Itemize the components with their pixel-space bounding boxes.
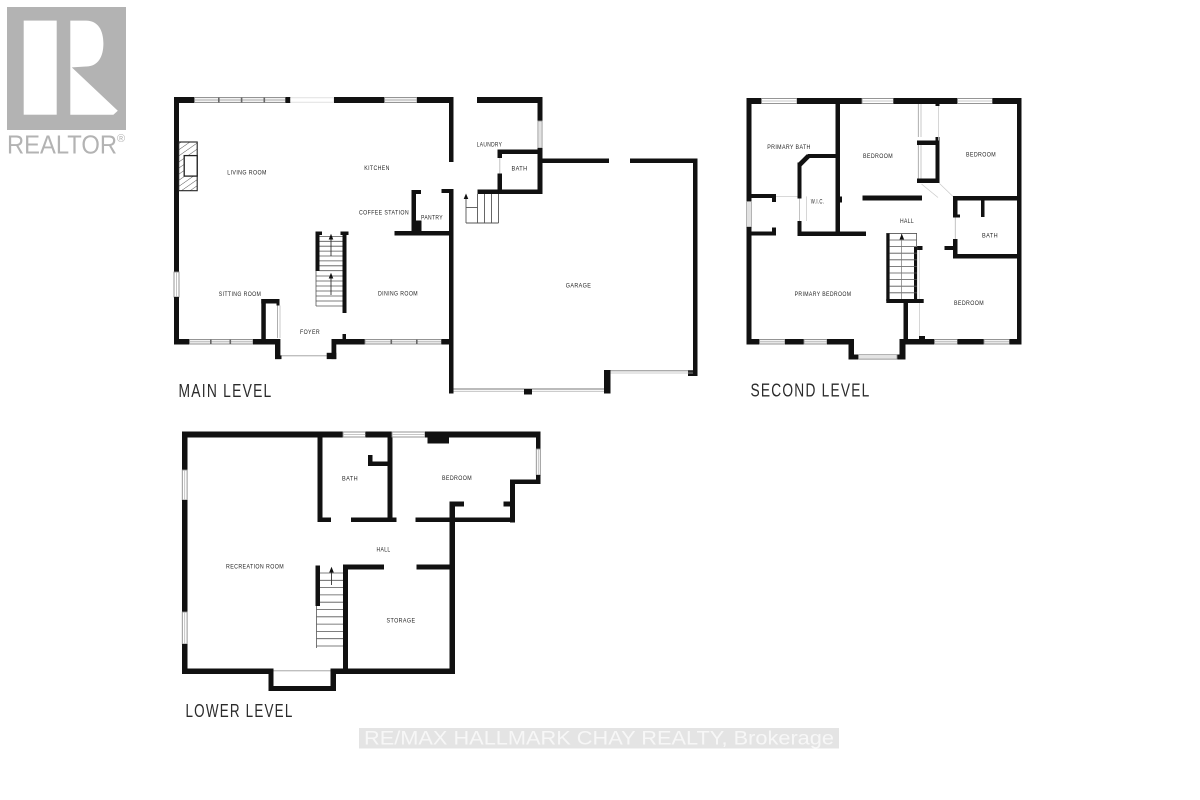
svg-text:LAUNDRY: LAUNDRY <box>477 142 503 149</box>
svg-text:PRIMARY BEDROOM: PRIMARY BEDROOM <box>795 291 852 298</box>
svg-text:BEDROOM: BEDROOM <box>966 152 996 159</box>
svg-text:W.I.C.: W.I.C. <box>811 198 825 205</box>
svg-text:FOYER: FOYER <box>300 329 320 336</box>
svg-text:HALL: HALL <box>377 547 391 554</box>
svg-text:RECREATION ROOM: RECREATION ROOM <box>226 563 284 570</box>
svg-text:BEDROOM: BEDROOM <box>954 300 984 307</box>
svg-text:BATH: BATH <box>342 476 358 483</box>
svg-text:BEDROOM: BEDROOM <box>442 475 472 482</box>
svg-text:MAIN LEVEL: MAIN LEVEL <box>179 381 273 401</box>
svg-text:REALTOR: REALTOR <box>7 132 117 160</box>
svg-text:BATH: BATH <box>982 232 998 239</box>
svg-text:STORAGE: STORAGE <box>387 617 416 624</box>
svg-text:PRIMARY BATH: PRIMARY BATH <box>767 144 811 151</box>
svg-text:COFFEE STATION: COFFEE STATION <box>359 210 409 217</box>
svg-text:LOWER LEVEL: LOWER LEVEL <box>186 701 294 721</box>
svg-text:KITCHEN: KITCHEN <box>364 165 390 172</box>
svg-text:RE/MAX HALLMARK CHAY REALTY, B: RE/MAX HALLMARK CHAY REALTY, Brokerage <box>364 729 834 750</box>
svg-text:PANTRY: PANTRY <box>421 215 443 222</box>
svg-text:SITTING ROOM: SITTING ROOM <box>219 291 262 298</box>
svg-text:DINING ROOM: DINING ROOM <box>378 290 418 297</box>
svg-text:®: ® <box>117 133 125 145</box>
svg-text:SECOND LEVEL: SECOND LEVEL <box>751 381 871 401</box>
svg-text:HALL: HALL <box>900 218 914 225</box>
svg-text:GARAGE: GARAGE <box>566 282 592 289</box>
svg-text:LIVING ROOM: LIVING ROOM <box>227 170 267 177</box>
svg-text:BEDROOM: BEDROOM <box>863 153 893 160</box>
svg-text:BATH: BATH <box>512 165 528 172</box>
